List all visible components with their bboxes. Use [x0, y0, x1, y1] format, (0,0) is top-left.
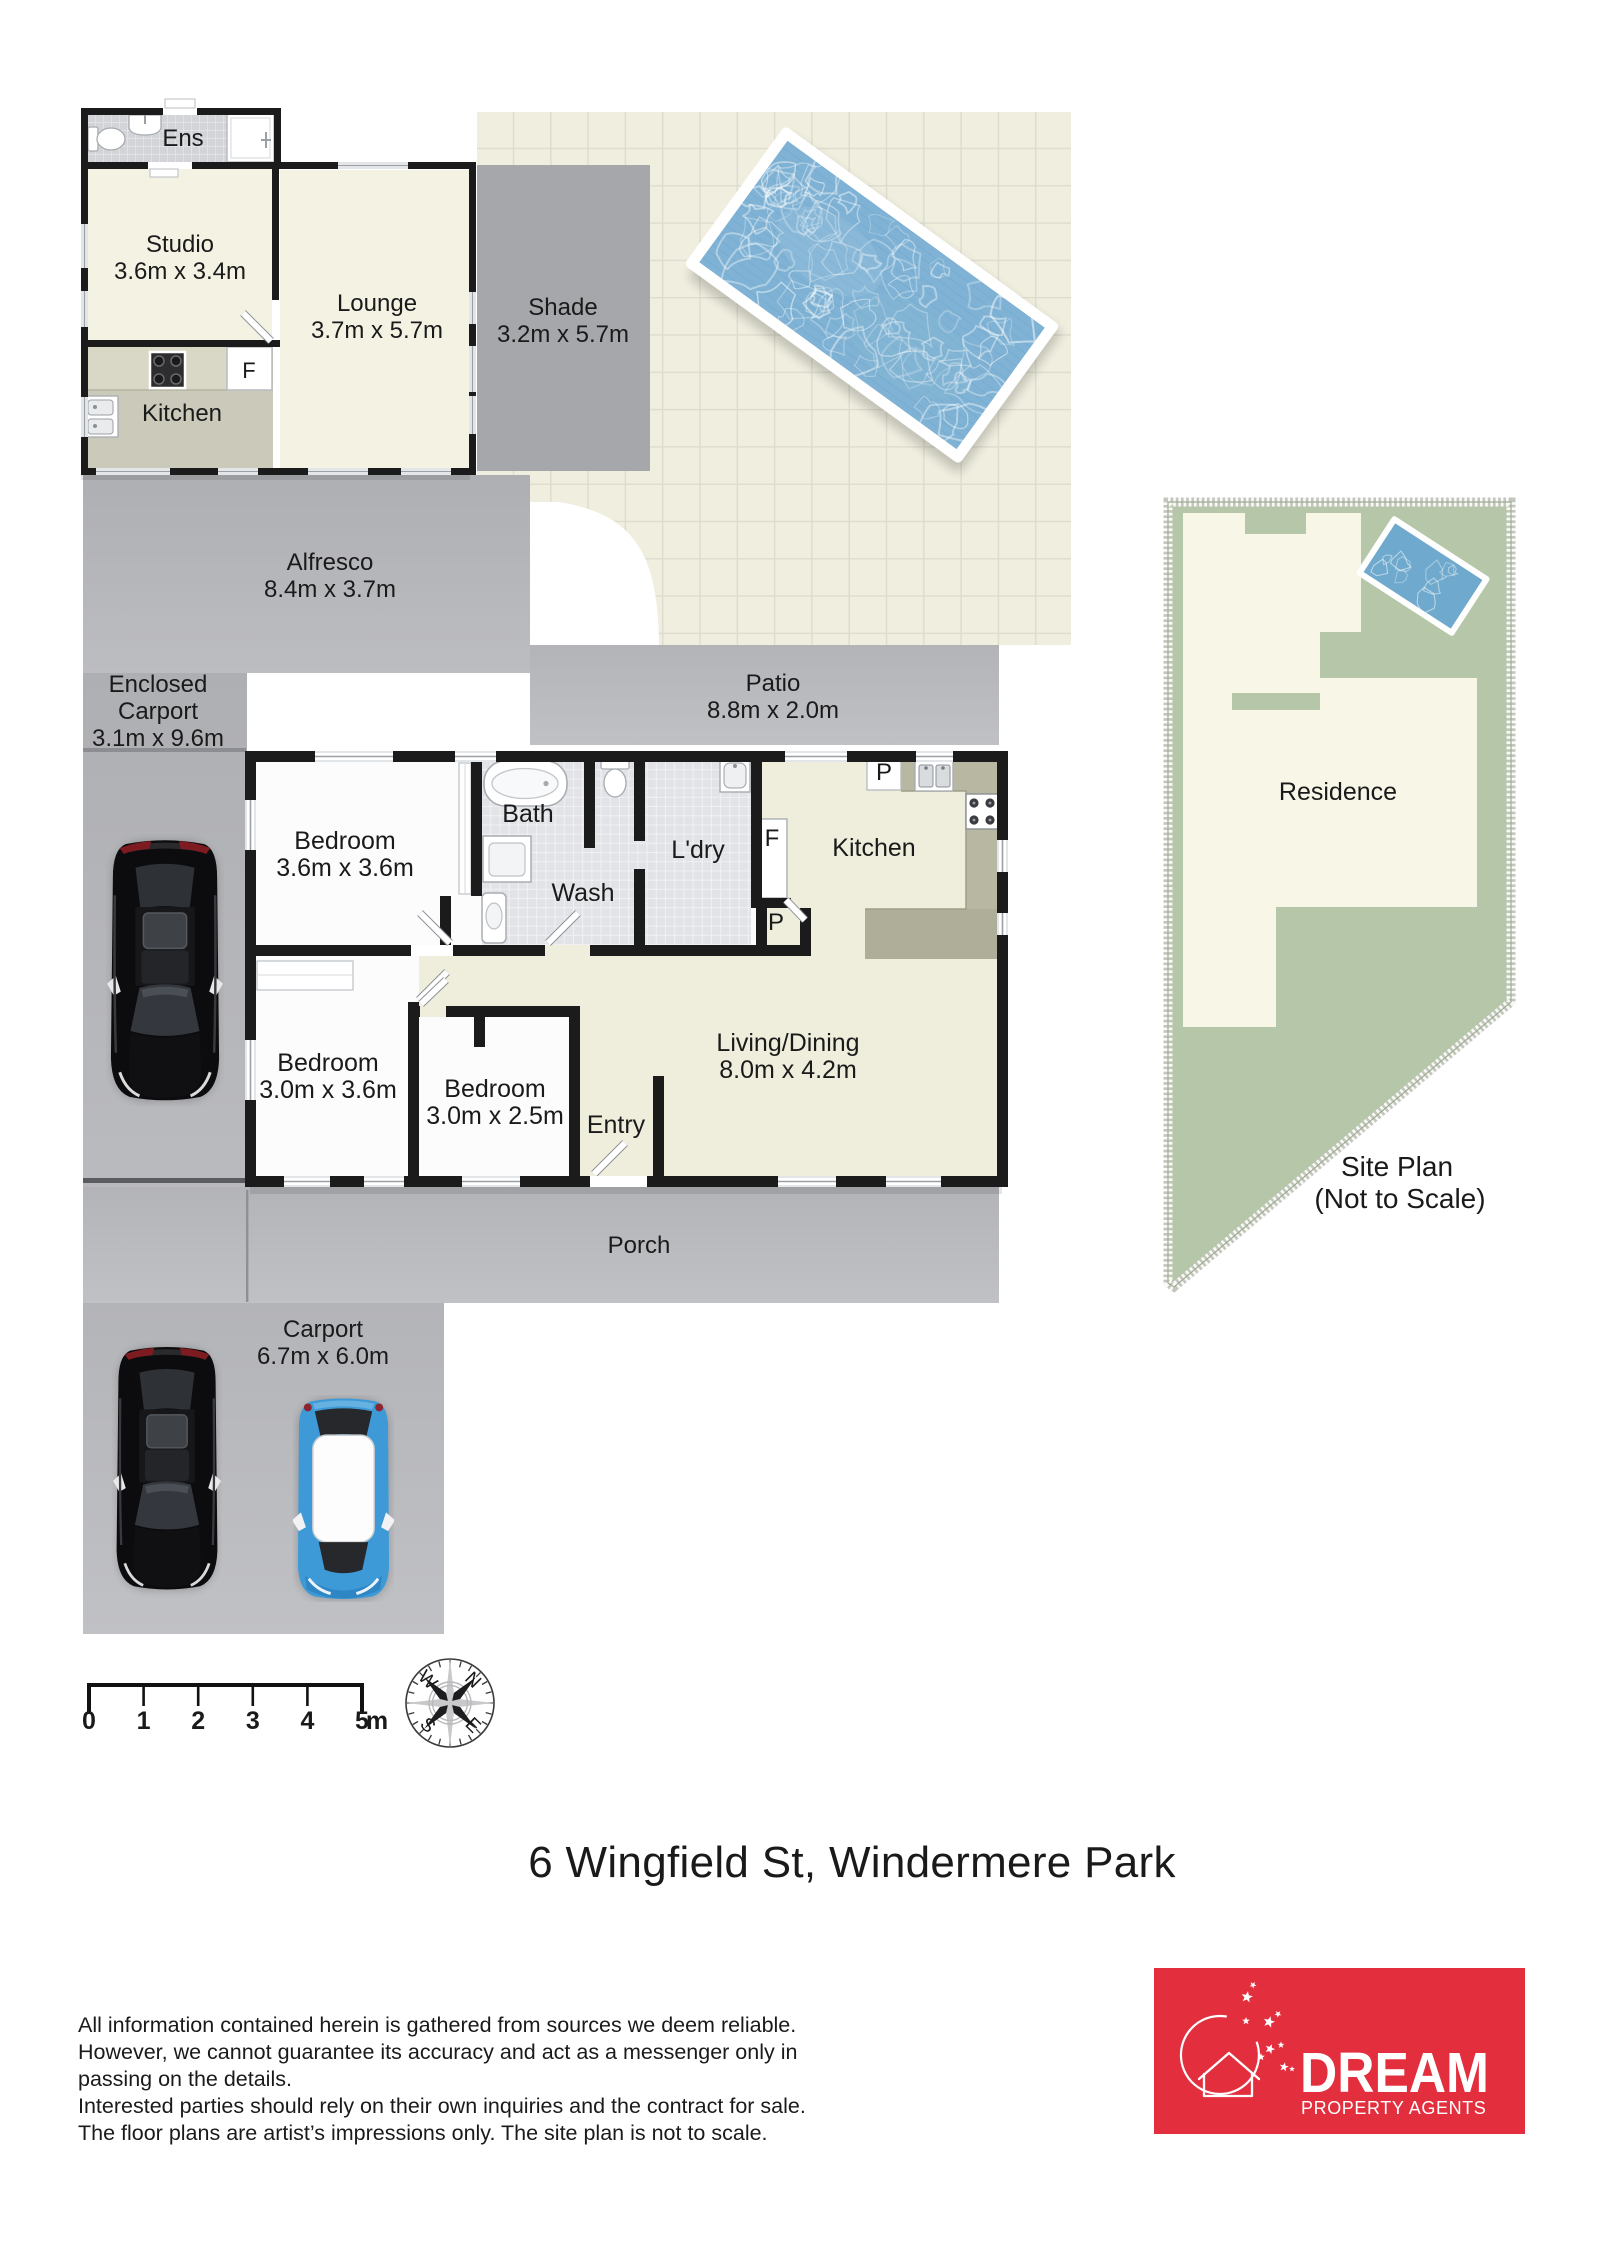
svg-text:(Not to Scale): (Not to Scale) [1314, 1183, 1485, 1214]
svg-text:Interested parties should rely: Interested parties should rely on their … [78, 2094, 806, 2118]
svg-text:m: m [366, 1707, 388, 1735]
svg-text:3.7m x 5.7m: 3.7m x 5.7m [311, 317, 443, 344]
svg-text:Bedroom: Bedroom [444, 1075, 545, 1103]
svg-text:4: 4 [300, 1707, 314, 1735]
svg-text:P: P [876, 759, 892, 786]
svg-text:Entry: Entry [587, 1111, 646, 1139]
svg-text:DREAM: DREAM [1300, 2041, 1489, 2105]
svg-text:Bedroom: Bedroom [277, 1049, 378, 1077]
svg-text:Living/Dining: Living/Dining [716, 1029, 859, 1057]
svg-text:3.0m x 3.6m: 3.0m x 3.6m [259, 1076, 397, 1104]
svg-text:1: 1 [137, 1707, 151, 1735]
svg-text:Patio: Patio [746, 670, 801, 697]
svg-text:6.7m x 6.0m: 6.7m x 6.0m [257, 1343, 389, 1370]
svg-text:Kitchen: Kitchen [142, 400, 222, 427]
svg-text:6 Wingfield St, Windermere Par: 6 Wingfield St, Windermere Park [528, 1838, 1176, 1887]
svg-text:L'dry: L'dry [671, 836, 725, 864]
svg-text:8.4m x 3.7m: 8.4m x 3.7m [264, 576, 396, 603]
svg-text:3.2m x 5.7m: 3.2m x 5.7m [497, 321, 629, 348]
svg-text:Residence: Residence [1279, 778, 1397, 806]
svg-text:Studio: Studio [146, 231, 214, 258]
svg-text:Ens: Ens [162, 125, 203, 152]
svg-text:Wash: Wash [552, 879, 615, 907]
svg-text:8.8m x 2.0m: 8.8m x 2.0m [707, 697, 839, 724]
svg-text:P: P [768, 909, 784, 936]
svg-text:F: F [765, 825, 780, 852]
svg-text:Enclosed: Enclosed [109, 671, 208, 698]
svg-text:passing on the details.: passing on the details. [78, 2067, 292, 2091]
svg-text:3: 3 [246, 1707, 260, 1735]
svg-text:Bath: Bath [502, 800, 553, 828]
svg-text:Shade: Shade [528, 294, 597, 321]
svg-text:Kitchen: Kitchen [832, 834, 915, 862]
svg-text:The floor plans are artist’s i: The floor plans are artist’s impressions… [78, 2121, 768, 2145]
svg-text:All information contained here: All information contained herein is gath… [78, 2013, 796, 2037]
svg-text:Carport: Carport [118, 698, 198, 725]
svg-text:F: F [242, 358, 255, 383]
svg-text:Alfresco: Alfresco [287, 549, 374, 576]
svg-text:3.6m x 3.4m: 3.6m x 3.4m [114, 258, 246, 285]
svg-text:Bedroom: Bedroom [294, 827, 395, 855]
svg-text:Carport: Carport [283, 1316, 363, 1343]
svg-text:3.0m x 2.5m: 3.0m x 2.5m [426, 1102, 564, 1130]
svg-text:Porch: Porch [608, 1232, 671, 1259]
svg-text:2: 2 [191, 1707, 205, 1735]
svg-text:PROPERTY AGENTS: PROPERTY AGENTS [1301, 2098, 1486, 2118]
svg-text:8.0m x 4.2m: 8.0m x 4.2m [719, 1056, 857, 1084]
svg-text:However, we cannot guarantee i: However, we cannot guarantee its accurac… [78, 2040, 797, 2064]
svg-text:Lounge: Lounge [337, 290, 417, 317]
svg-text:3.1m x 9.6m: 3.1m x 9.6m [92, 725, 224, 752]
svg-text:Site Plan: Site Plan [1341, 1151, 1453, 1182]
svg-text:0: 0 [82, 1707, 96, 1735]
svg-text:3.6m x 3.6m: 3.6m x 3.6m [276, 854, 414, 882]
